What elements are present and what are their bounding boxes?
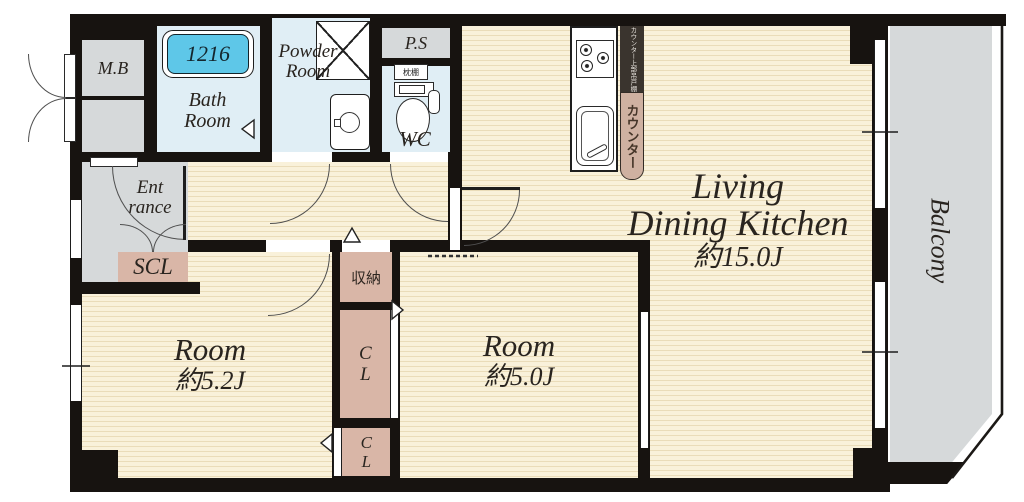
ldk-balcony-window xyxy=(874,282,886,428)
entrance-label: Ent rance xyxy=(108,174,192,222)
balcony-label: Balcony xyxy=(888,26,992,456)
stove-burner-icon xyxy=(581,60,593,72)
closet-a-door xyxy=(390,310,399,418)
shoe-closet: SCL xyxy=(118,252,188,282)
storage-closet: 収納 xyxy=(340,252,392,302)
door-opening xyxy=(272,152,332,162)
closet-a-label: CL xyxy=(355,343,375,385)
entry-door-arc xyxy=(28,98,66,142)
door-leaf-ldk xyxy=(462,187,520,190)
closet-a: CL xyxy=(340,310,390,418)
wall-bottom xyxy=(70,478,890,492)
scl-label: SCL xyxy=(133,255,173,279)
wc-shelf: 枕棚 xyxy=(394,64,428,80)
meter-box: M.B xyxy=(82,40,144,96)
bathtub-inner: 1216 xyxy=(167,34,249,74)
stove-burner-icon xyxy=(597,52,609,64)
counter-cabinet-label: カウンター上部吊戸棚 xyxy=(628,27,636,92)
door-opening xyxy=(450,188,460,250)
utility-box xyxy=(82,100,144,152)
room-a-label: Room 約5.2J xyxy=(92,316,328,412)
vanity-basin xyxy=(339,112,360,133)
floor-plan: SCL M.B 1216 Bath Room Powder Room P.S 枕… xyxy=(0,0,1024,502)
powder-label: Powder Room xyxy=(262,40,354,84)
closet-b: CL xyxy=(342,428,390,476)
wall-top xyxy=(70,14,1006,26)
room-a-window xyxy=(70,305,82,401)
door-opening xyxy=(342,240,390,252)
bath-label: Bath Room xyxy=(155,86,260,136)
toilet-lever xyxy=(428,90,440,114)
entrance-window xyxy=(70,200,82,258)
stove-burner-icon xyxy=(580,44,592,56)
ldk-label: Living Dining Kitchen 約15.0J xyxy=(598,162,878,278)
entry-door-arc xyxy=(28,54,66,98)
vanity-tap xyxy=(334,119,341,127)
bathtub-size-label: 1216 xyxy=(186,43,230,66)
wall-segment xyxy=(70,282,200,294)
wall-segment xyxy=(188,240,650,252)
closet-b-door xyxy=(333,428,342,476)
counter-label: カウンター xyxy=(623,104,642,169)
closet-b-label: CL xyxy=(357,433,375,471)
storage-label: 収納 xyxy=(351,267,381,288)
wall-segment xyxy=(78,450,118,480)
room-b-label: Room 約5.0J xyxy=(408,312,630,408)
wall-segment xyxy=(850,26,874,64)
mb-label: M.B xyxy=(98,59,129,78)
toilet-tank-lid xyxy=(399,85,425,94)
counter-upper-cabinet: カウンター上部吊戸棚 xyxy=(620,26,644,92)
wc-shelf-label: 枕棚 xyxy=(403,67,419,78)
ps-label: P.S xyxy=(405,34,427,53)
door-opening xyxy=(266,240,330,252)
room-b-sliding-door xyxy=(640,312,649,448)
pipe-space: P.S xyxy=(382,28,450,58)
balcony-bottom-wall xyxy=(888,462,968,484)
wc-label: WC xyxy=(382,126,448,154)
